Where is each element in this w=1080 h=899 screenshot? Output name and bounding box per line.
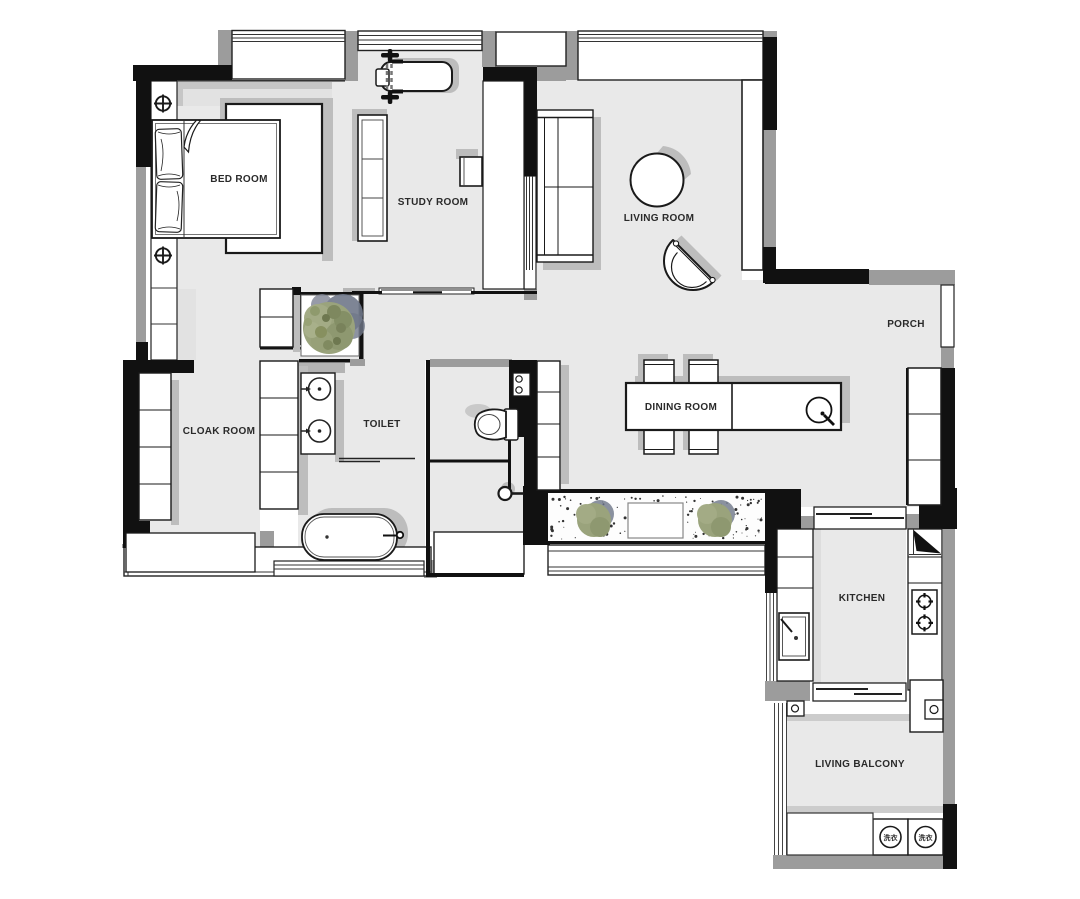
svg-text:STUDY ROOM: STUDY ROOM (398, 197, 469, 208)
svg-text:BED ROOM: BED ROOM (210, 174, 267, 185)
svg-text:LIVING ROOM: LIVING ROOM (624, 213, 695, 224)
svg-text:CLOAK ROOM: CLOAK ROOM (183, 426, 255, 437)
svg-text:洗衣: 洗衣 (919, 833, 934, 842)
svg-text:PORCH: PORCH (887, 319, 925, 330)
svg-text:LIVING BALCONY: LIVING BALCONY (815, 759, 905, 770)
svg-text:DINING ROOM: DINING ROOM (645, 402, 717, 413)
svg-text:TOILET: TOILET (363, 419, 400, 430)
svg-text:洗衣: 洗衣 (884, 833, 899, 842)
svg-text:KITCHEN: KITCHEN (839, 593, 886, 604)
